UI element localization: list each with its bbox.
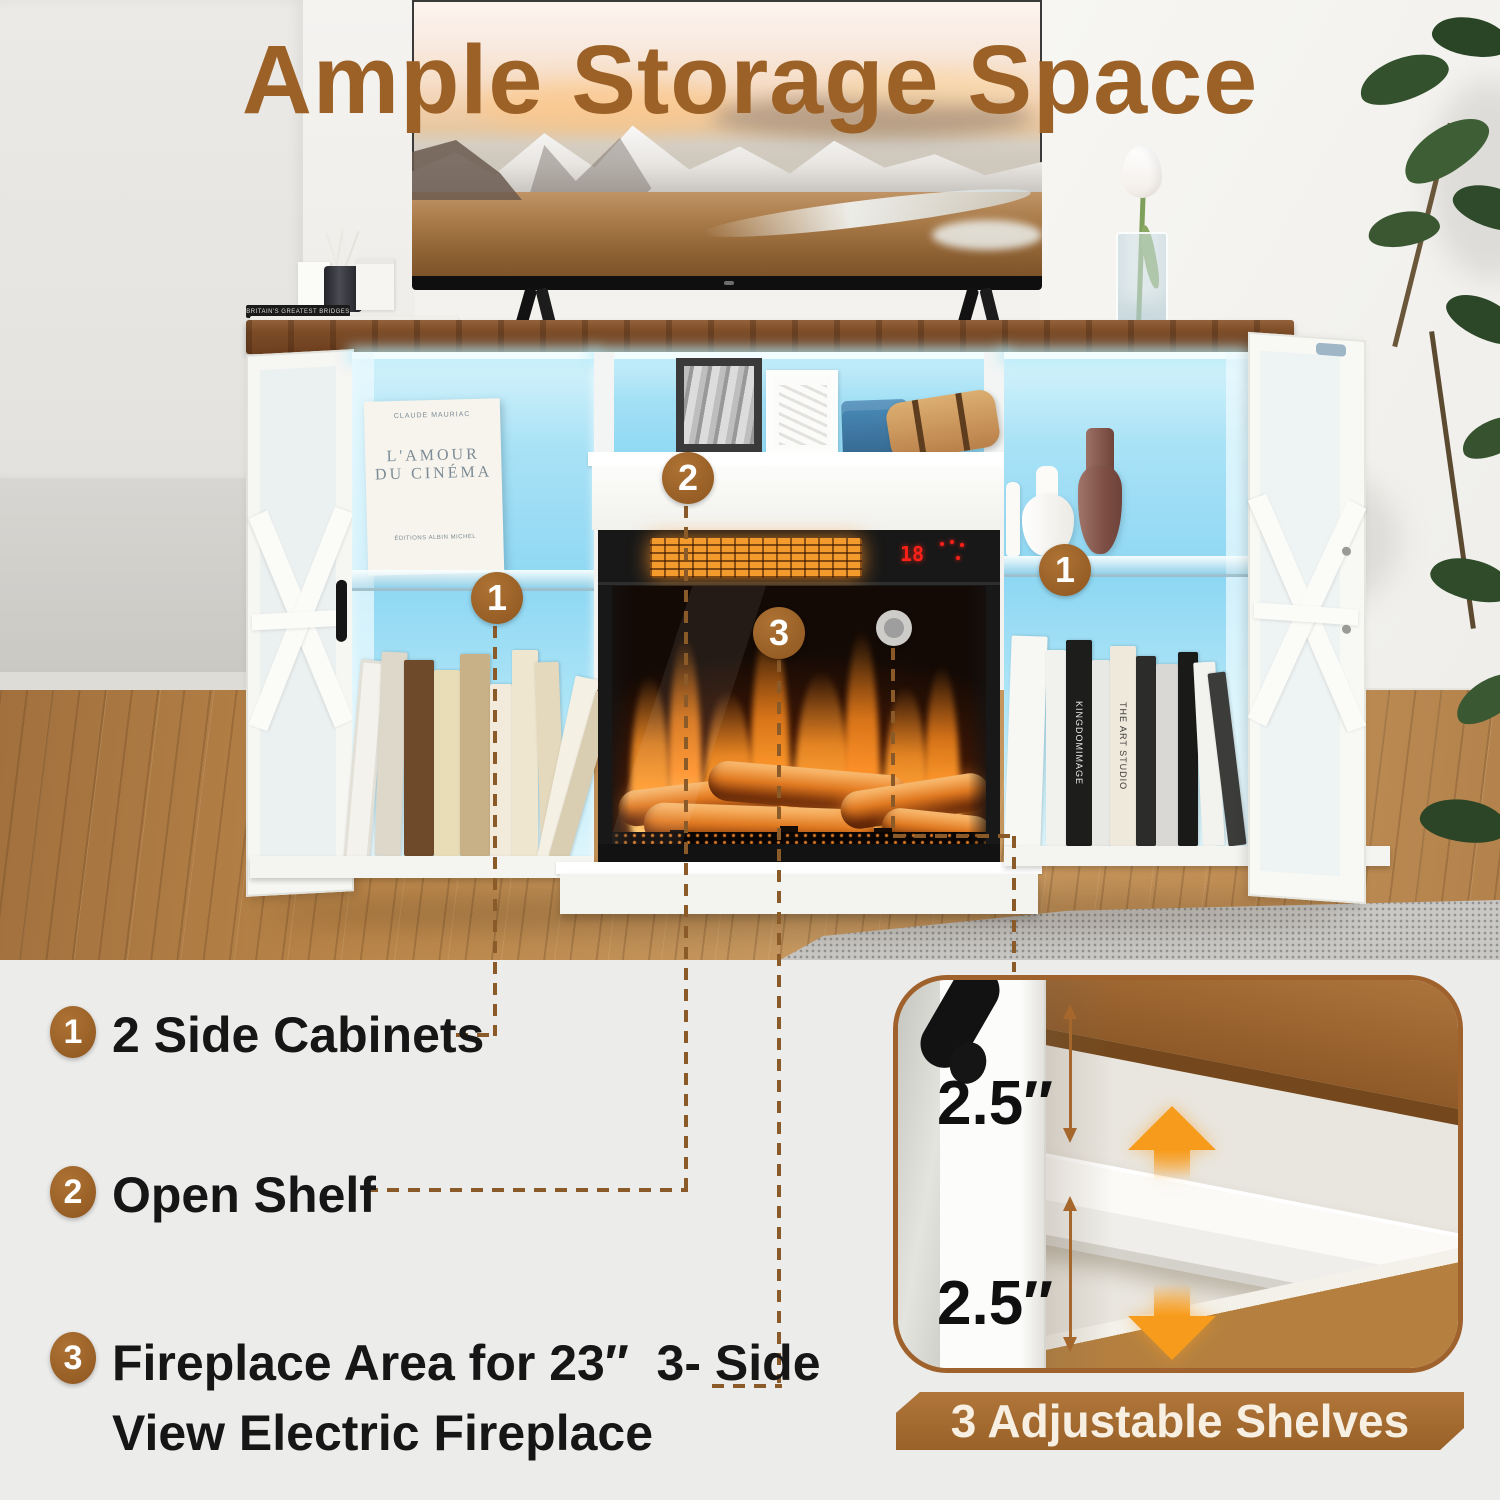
led-strip <box>352 352 594 359</box>
arrow-up-tail <box>1154 1150 1190 1180</box>
book-spine <box>404 660 434 856</box>
leader-line-2-horizontal <box>366 1188 688 1192</box>
book-spine <box>1046 650 1066 846</box>
fireplace-platform <box>556 862 1042 874</box>
black-book-title: BRITAIN'S GREATEST BRIDGES <box>246 309 350 315</box>
leader-line-shelfpin-vertical <box>891 648 895 836</box>
side-glass <box>968 586 986 844</box>
dim-arrowhead-down <box>1063 1128 1077 1143</box>
hinge-pin <box>1342 624 1351 634</box>
mantel-top <box>588 452 1008 466</box>
led-dot <box>956 556 960 560</box>
gap-measurement-bottom: 2.5″ <box>925 1268 1065 1339</box>
bookend <box>1004 635 1047 846</box>
dim-line <box>1069 1209 1072 1339</box>
feature-3-badge: 3 <box>50 1332 96 1384</box>
feature-1-label: 2 Side Cabinets <box>112 1000 484 1070</box>
product-infographic: BRITAIN'S GREATEST BRIDGES CLAUDE MAURIA… <box>0 0 1500 1500</box>
book-spine <box>1136 656 1156 846</box>
leader-line-shelfpin-horizontal <box>893 834 1016 838</box>
led-display: 18 <box>900 542 944 564</box>
adjust-arrow-up <box>1128 1106 1216 1150</box>
candlestick <box>1006 482 1020 556</box>
inset-caption-banner: 3 Adjustable Shelves <box>896 1392 1464 1450</box>
adjust-arrow-down <box>1128 1284 1216 1360</box>
book-spine <box>434 670 460 856</box>
poster-author: CLAUDE MAURIAC <box>364 410 500 421</box>
inset-caption-text: 3 Adjustable Shelves <box>951 1394 1409 1448</box>
bw-photo <box>684 366 754 444</box>
hinge-pin <box>1342 546 1351 556</box>
feature-number: 1 <box>64 1013 83 1052</box>
gap-measurement-top: 2.5″ <box>925 1068 1065 1139</box>
lifestyle-photo: BRITAIN'S GREATEST BRIDGES CLAUDE MAURIA… <box>0 0 1500 960</box>
leader-line-1-vertical <box>493 626 497 1036</box>
book-spine <box>460 654 490 856</box>
decor-box <box>356 258 394 310</box>
sketch <box>779 385 827 445</box>
left-cabinet-base <box>250 856 594 878</box>
door-handle <box>336 580 347 643</box>
leader-line-3-vertical <box>777 660 781 1383</box>
led-dot <box>950 540 954 544</box>
feature-3-label-line1: Fireplace Area for 23″ 3- Side <box>112 1328 821 1398</box>
mantel-face <box>592 466 1004 530</box>
poster-footer: ÉDITIONS ALBIN MICHEL <box>367 533 503 543</box>
callout-number: 2 <box>678 457 698 499</box>
book-spine <box>1092 660 1110 846</box>
divider-wall <box>594 352 614 460</box>
roll-strap <box>912 400 927 458</box>
callout-number: 1 <box>1055 549 1075 591</box>
tulip-flower <box>1122 146 1162 198</box>
tabletop <box>246 320 1294 354</box>
arrow-down-head <box>1128 1316 1216 1360</box>
callout-badge-1-left: 1 <box>471 572 523 624</box>
dim-arrowhead-down <box>1063 1337 1077 1352</box>
picture-frame-black <box>676 358 762 452</box>
callout-badge-3: 3 <box>753 607 805 659</box>
tabletop-grain <box>246 320 1294 354</box>
fireplace-platform-face <box>560 874 1038 914</box>
led-strip <box>1004 352 1248 359</box>
glass-vase <box>1116 232 1168 324</box>
fireplace-top-bevel <box>598 582 1000 585</box>
led-dot <box>940 542 944 546</box>
hinge-plate <box>1316 343 1346 357</box>
arrow-down-tail <box>1154 1284 1190 1316</box>
book-spine <box>512 650 538 856</box>
headline: Ample Storage Space <box>0 24 1500 136</box>
leader-line-shelfpin-drop <box>1012 836 1016 972</box>
poster-title-2: DU CINÉMA <box>365 463 501 485</box>
shelf-pin-dot <box>884 618 904 638</box>
left-cabinet-door <box>246 349 354 897</box>
book-spine <box>1156 664 1178 846</box>
picture-frame-white <box>766 370 838 456</box>
callout-number: 1 <box>487 577 507 619</box>
book-spine-title: THE ART STUDIO <box>1110 646 1136 846</box>
book-spine: KINGDOMIMAGE <box>1066 640 1092 846</box>
tv-surf <box>932 220 1042 250</box>
callout-badge-2: 2 <box>662 452 714 504</box>
book-spine-title: KINGDOMIMAGE <box>1066 640 1092 846</box>
feature-1-badge: 1 <box>50 1006 96 1058</box>
arrow-up-head <box>1128 1106 1216 1150</box>
led-dot <box>960 543 964 547</box>
leader-line-2-vertical <box>684 506 688 1191</box>
book-spine: THE ART STUDIO <box>1110 646 1136 846</box>
door-stile <box>1338 340 1362 902</box>
callout-number: 3 <box>769 612 789 654</box>
feature-number: 3 <box>64 1339 83 1378</box>
feature-number: 2 <box>64 1173 83 1212</box>
feature-2-badge: 2 <box>50 1166 96 1218</box>
callout-badge-1-right: 1 <box>1039 544 1091 596</box>
tv-logo-dot <box>724 281 734 285</box>
right-cabinet-door <box>1248 332 1366 904</box>
feature-2-label: Open Shelf <box>112 1160 376 1230</box>
led-strip <box>594 352 1004 359</box>
poster-book: CLAUDE MAURIAC L'AMOUR DU CINÉMA ÉDITION… <box>364 398 505 576</box>
shelf-pin-marker <box>876 610 912 646</box>
dim-line <box>1069 1017 1072 1130</box>
fireplace: 18 <box>598 530 1000 866</box>
heater-brick-glow <box>650 538 862 578</box>
feature-3-label-line2: View Electric Fireplace <box>112 1398 653 1468</box>
roll-strap <box>955 393 970 451</box>
